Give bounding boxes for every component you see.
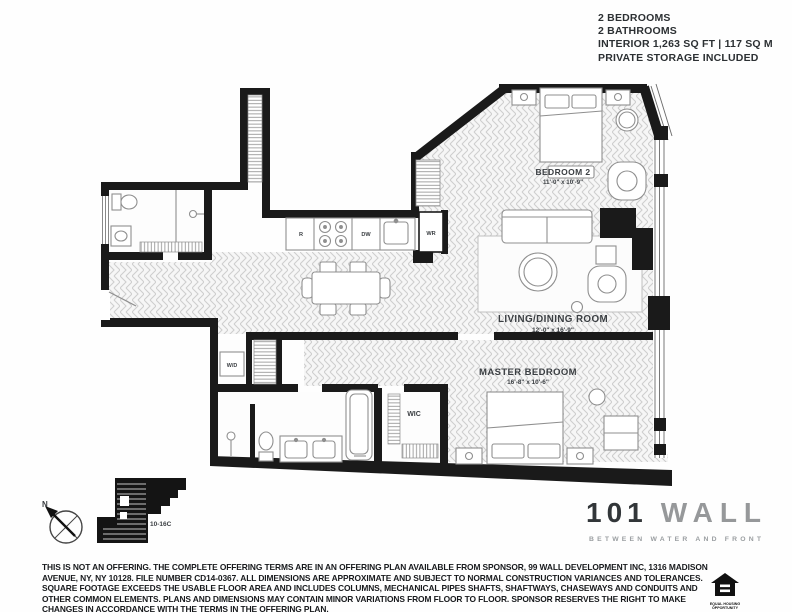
refrigerator-label: R bbox=[299, 232, 303, 238]
side-table-icon bbox=[596, 246, 616, 264]
linen-closet-icon bbox=[254, 340, 276, 384]
left-window bbox=[100, 196, 110, 244]
living-label: LIVING/DINING ROOM bbox=[498, 314, 608, 325]
equal-housing-label-2: OPPORTUNITY bbox=[704, 606, 746, 610]
toilet-icon bbox=[259, 432, 273, 450]
bedroom2-label: BEDROOM 2 bbox=[535, 167, 590, 177]
keyplan-unit-label: 10-16C bbox=[150, 521, 172, 528]
storage-shaft bbox=[248, 95, 262, 182]
key-plan: 10-16C bbox=[97, 478, 186, 543]
brand-tagline: BETWEEN WATER AND FRONT bbox=[589, 536, 764, 543]
master-dims: 16'-8" x 10'-6" bbox=[507, 379, 549, 386]
dishwasher-label: DW bbox=[361, 232, 371, 238]
floorplan-page: 2 BEDROOMS 2 BATHROOMS INTERIOR 1,263 SQ… bbox=[0, 0, 792, 612]
north-label: N bbox=[42, 500, 48, 509]
compass-icon: N bbox=[42, 500, 82, 543]
equal-housing-logo: EQUAL HOUSING OPPORTUNITY bbox=[704, 572, 746, 610]
equal-housing-house-icon bbox=[710, 572, 740, 597]
brand-logo: 101 WALL bbox=[586, 497, 768, 529]
wardrobe-label: WR bbox=[426, 231, 435, 237]
logo-name: WALL bbox=[661, 497, 768, 529]
closet-shelves-icon bbox=[140, 242, 202, 252]
bedroom2-dims: 11'-0" x 10'-9" bbox=[543, 179, 583, 186]
showerhead-icon bbox=[190, 211, 197, 218]
stool-icon bbox=[572, 302, 583, 313]
master-label: MASTER BEDROOM bbox=[479, 367, 577, 378]
wic-label: WIC bbox=[407, 411, 421, 418]
stool-icon bbox=[589, 389, 605, 405]
offering-disclaimer: THIS IS NOT AN OFFERING. THE COMPLETE OF… bbox=[42, 562, 710, 612]
kitchen-sink-icon bbox=[384, 222, 408, 244]
toilet-bowl-icon bbox=[121, 195, 137, 209]
logo-number: 101 bbox=[586, 497, 648, 529]
closet-icon bbox=[416, 160, 440, 206]
showerhead-icon bbox=[227, 432, 235, 440]
living-dims: 12'-0" x 16'-9" bbox=[532, 327, 574, 334]
toilet-icon bbox=[112, 194, 121, 210]
wd-label: W/D bbox=[227, 363, 238, 369]
